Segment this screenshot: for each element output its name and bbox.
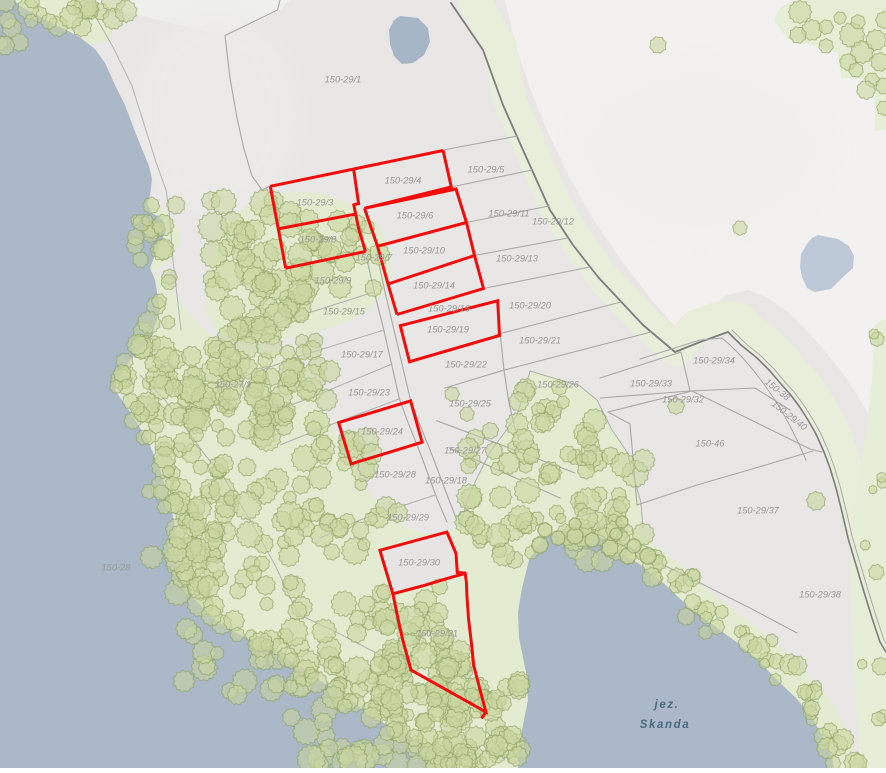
svg-text:150-29/25: 150-29/25: [449, 398, 492, 408]
svg-text:150-29/9: 150-29/9: [315, 275, 352, 285]
svg-text:150-29/14: 150-29/14: [413, 280, 455, 290]
svg-text:150-29/16: 150-29/16: [428, 303, 471, 313]
svg-text:150-29/33: 150-29/33: [630, 378, 673, 388]
svg-text:150-29/29: 150-29/29: [387, 512, 429, 522]
svg-text:150-29/12: 150-29/12: [532, 216, 575, 226]
svg-text:150-29/24: 150-29/24: [361, 426, 403, 436]
svg-text:150-28: 150-28: [102, 562, 132, 572]
svg-text:150-29/28: 150-29/28: [374, 469, 417, 479]
svg-text:150-29/13: 150-29/13: [496, 253, 539, 263]
svg-text:150-29/21: 150-29/21: [519, 335, 561, 345]
svg-text:150-29/27: 150-29/27: [444, 445, 487, 455]
svg-text:150-29/3: 150-29/3: [297, 197, 335, 207]
svg-text:150-29/11: 150-29/11: [488, 208, 529, 218]
svg-text:150-27/1: 150-27/1: [215, 379, 252, 389]
svg-text:150-29/26: 150-29/26: [537, 379, 580, 389]
svg-text:150-29/37: 150-29/37: [737, 505, 780, 515]
svg-text:jez.: jez.: [653, 699, 680, 711]
svg-text:150-29/6: 150-29/6: [397, 210, 435, 220]
svg-text:150-46: 150-46: [696, 438, 726, 448]
svg-text:150-29/22: 150-29/22: [445, 359, 488, 369]
svg-text:150-29/17: 150-29/17: [341, 349, 384, 359]
svg-text:150-29/23: 150-29/23: [348, 387, 391, 397]
svg-text:150-29/5: 150-29/5: [468, 164, 506, 174]
svg-text:150-29/7: 150-29/7: [356, 252, 394, 262]
svg-text:150-29/10: 150-29/10: [403, 245, 446, 255]
svg-text:150-29/34: 150-29/34: [693, 355, 735, 365]
svg-text:150-29/31: 150-29/31: [416, 628, 458, 638]
svg-text:Skanda: Skanda: [640, 719, 691, 731]
svg-text:150-29/18: 150-29/18: [425, 475, 468, 485]
svg-text:150-29/32: 150-29/32: [662, 394, 705, 404]
svg-text:150-29/8: 150-29/8: [300, 234, 338, 244]
svg-text:150-29/4: 150-29/4: [385, 175, 422, 185]
svg-text:150-29/20: 150-29/20: [509, 300, 552, 310]
svg-text:150-29/30: 150-29/30: [398, 557, 441, 567]
svg-text:150-29/1: 150-29/1: [325, 74, 362, 84]
svg-text:150-29/38: 150-29/38: [799, 589, 842, 599]
svg-text:150-29/19: 150-29/19: [427, 324, 469, 334]
svg-text:150-29/15: 150-29/15: [323, 306, 366, 316]
